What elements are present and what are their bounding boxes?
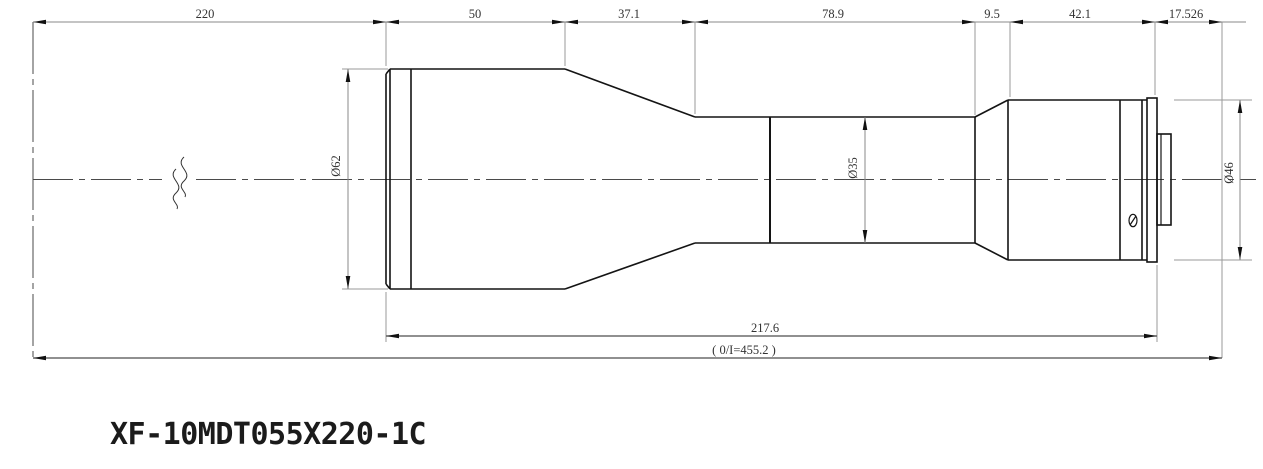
dim-label-dia46: Ø46 <box>1222 162 1236 184</box>
dim-label-9-5: 9.5 <box>984 7 1000 21</box>
dim-label-42-1: 42.1 <box>1069 7 1091 21</box>
dim-label-50: 50 <box>469 7 482 21</box>
dim-label-78-9: 78.9 <box>822 7 844 21</box>
set-screw-slot <box>1130 216 1136 225</box>
dim-label-dia62: Ø62 <box>329 155 343 177</box>
rear-flange-ring <box>1147 98 1157 262</box>
extension-lines <box>342 22 1252 342</box>
axis-break-symbol <box>181 157 187 197</box>
lens-outline <box>386 69 1171 289</box>
centerlines <box>33 22 1256 358</box>
dim-label-dia35: Ø35 <box>846 157 860 179</box>
part-number: XF-10MDT055X220-1C <box>110 417 426 452</box>
dimension-arrows <box>33 20 1242 361</box>
rear-taper-cone <box>975 100 1008 260</box>
axis-break-symbol <box>173 169 179 209</box>
dim-label-217-6: 217.6 <box>751 321 779 335</box>
mid-tube <box>695 117 975 243</box>
front-cylinder <box>386 69 565 289</box>
dim-label-220: 220 <box>196 7 215 21</box>
front-taper-cone <box>565 69 695 289</box>
dim-label-17-526: 17.526 <box>1169 7 1203 21</box>
dimension-labels: 220 50 37.1 78.9 9.5 42.1 17.526 Ø62 Ø35… <box>196 7 1236 357</box>
rear-barrel <box>1008 100 1147 260</box>
lens-dimension-drawing: 220 50 37.1 78.9 9.5 42.1 17.526 Ø62 Ø35… <box>0 0 1263 469</box>
dim-label-37-1: 37.1 <box>618 7 640 21</box>
dim-label-object-image: ( 0/I=455.2 ) <box>712 343 776 357</box>
technical-drawing-page: 220 50 37.1 78.9 9.5 42.1 17.526 Ø62 Ø35… <box>0 0 1263 469</box>
dimension-lines <box>33 22 1246 358</box>
